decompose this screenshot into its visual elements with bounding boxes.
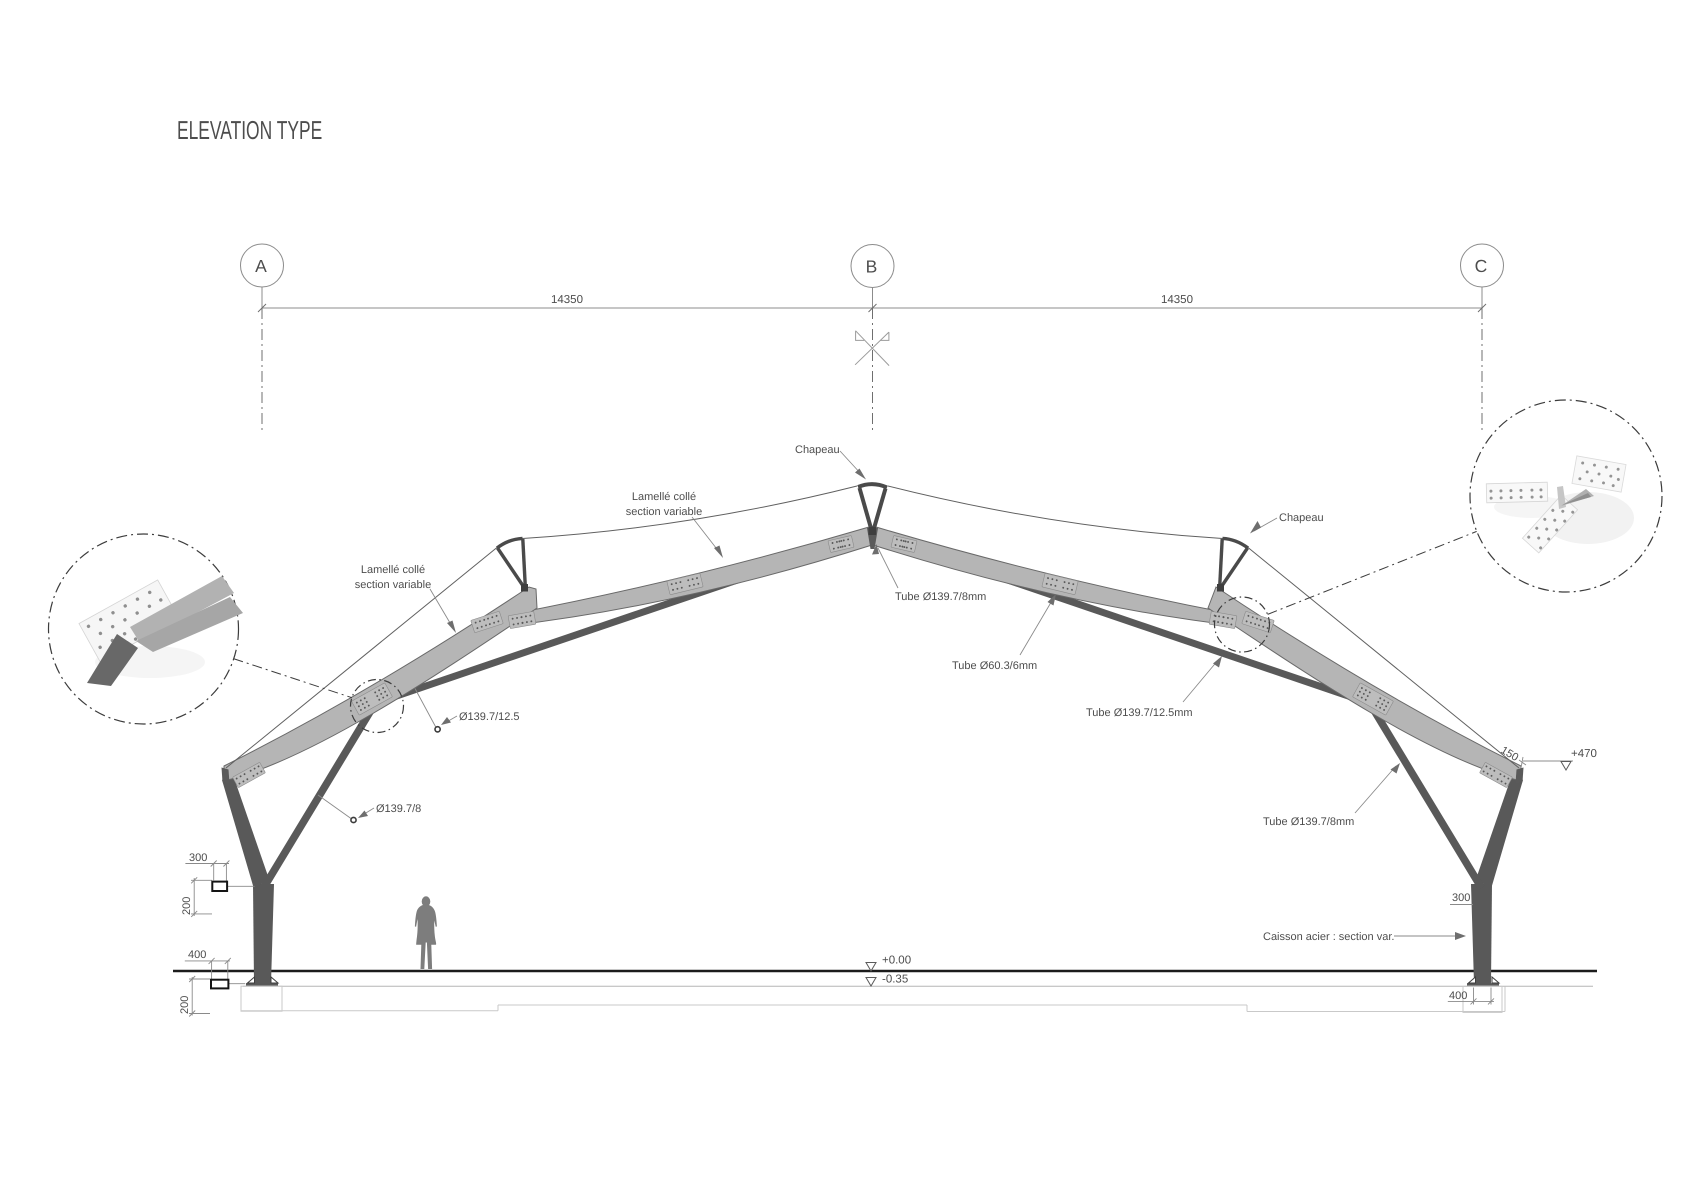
svg-text:Tube Ø60.3/6mm: Tube Ø60.3/6mm — [952, 660, 1037, 672]
svg-text:C: C — [1475, 256, 1488, 276]
svg-text:section variable: section variable — [626, 506, 702, 518]
svg-text:A: A — [255, 256, 267, 276]
svg-text:Tube Ø139.7/8mm: Tube Ø139.7/8mm — [1263, 816, 1354, 828]
svg-text:300: 300 — [189, 852, 207, 864]
svg-text:14350: 14350 — [551, 294, 583, 306]
svg-text:Ø139.7/8: Ø139.7/8 — [376, 803, 421, 815]
svg-text:Tube Ø139.7/8mm: Tube Ø139.7/8mm — [895, 591, 986, 603]
svg-text:Chapeau: Chapeau — [1279, 512, 1324, 524]
svg-text:-0.35: -0.35 — [882, 974, 908, 986]
svg-text:+0.00: +0.00 — [882, 955, 911, 967]
svg-text:300: 300 — [1452, 892, 1470, 904]
svg-text:Lamellé collé: Lamellé collé — [361, 564, 425, 576]
svg-text:section variable: section variable — [355, 579, 431, 591]
svg-text:ELEVATION TYPE: ELEVATION TYPE — [177, 115, 322, 145]
svg-text:400: 400 — [188, 949, 206, 961]
svg-text:200: 200 — [179, 996, 191, 1014]
svg-text:+470: +470 — [1571, 748, 1597, 760]
svg-text:Ø139.7/12.5: Ø139.7/12.5 — [459, 711, 520, 723]
svg-text:400: 400 — [1449, 990, 1467, 1002]
svg-text:Caisson acier : section var.: Caisson acier : section var. — [1263, 931, 1394, 943]
svg-text:14350: 14350 — [1161, 294, 1193, 306]
svg-text:200: 200 — [181, 897, 193, 915]
svg-text:B: B — [866, 257, 878, 277]
svg-text:Tube Ø139.7/12.5mm: Tube Ø139.7/12.5mm — [1086, 707, 1193, 719]
svg-text:Lamellé collé: Lamellé collé — [632, 491, 696, 503]
svg-text:Chapeau: Chapeau — [795, 444, 840, 456]
